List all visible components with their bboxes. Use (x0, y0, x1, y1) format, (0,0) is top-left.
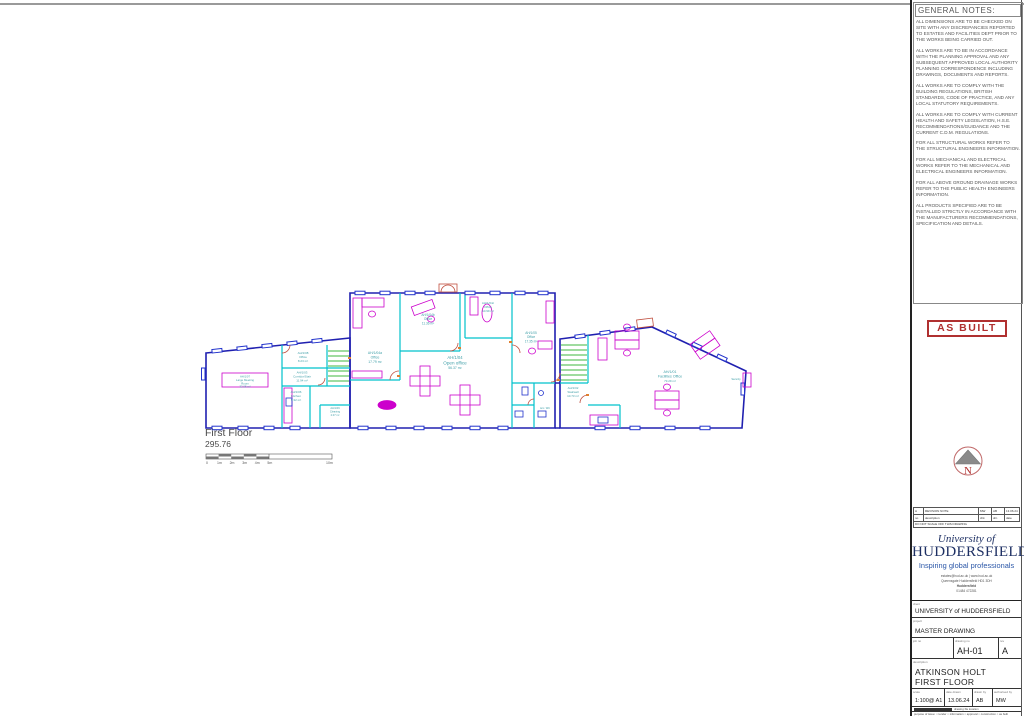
outer-walls (206, 293, 746, 428)
rev-label: rev (1000, 639, 1004, 643)
room-labels: AH/1/07Large MeetingRoom32.08 m² AH/1/08… (236, 301, 741, 417)
general-notes-title: GENERAL NOTES: (915, 4, 1021, 17)
room-label: AH/1/04cOffice10.99 m² (482, 301, 495, 313)
drawn-by-cell: drawn by AB (973, 689, 993, 706)
client-value: UNIVERSITY of HUDDERSFIELD (915, 608, 1010, 615)
general-notes: GENERAL NOTES: ALL DIMENSIONS ARE TO BE … (913, 2, 1023, 304)
svg-text:N: N (964, 465, 972, 477)
do-not-scale-warning: DO NOT SCALE OFF THIS DRAWING (913, 521, 1022, 528)
plan-title: First Floor (205, 427, 252, 439)
project-value: MASTER DRAWING (915, 628, 975, 635)
client-cell: client UNIVERSITY of HUDDERSFIELD (912, 601, 1021, 617)
svg-text:0: 0 (206, 461, 208, 465)
room-label: AH/1/05Office17.35 m² (525, 331, 538, 343)
room-label: AH/1/03Corridor/Stair11.94 m² (293, 371, 311, 383)
file-location-label: drawing file location (954, 707, 979, 711)
scale-date-row: scale 1:100@ A1 date drawn 13.06.24 draw… (912, 689, 1021, 707)
drawing-info-block: client UNIVERSITY of HUDDERSFIELD projec… (912, 600, 1021, 716)
revision-table: A REVISION NOTE MW AB 13.06.24 no descri… (913, 507, 1020, 522)
project-label: project (913, 619, 922, 623)
logo-contact: estates@hud.ac.uk | www.hud.ac.uk Queens… (912, 574, 1021, 595)
drawing-no-value: AH-01 (957, 646, 983, 656)
svg-text:3m: 3m (242, 461, 247, 465)
drawing-number-row: job no drawing no AH-01 rev A (912, 638, 1021, 659)
floor-plan-drawing: AH/1/07Large MeetingRoom32.08 m² AH/1/08… (200, 283, 760, 433)
room-label: AH/1/06Kitchen5.32 m² (291, 390, 302, 402)
date-label: date drawn (946, 690, 961, 694)
note-paragraph: FOR ALL STRUCTURAL WORKS REFER TO THE ST… (916, 140, 1020, 152)
room-label: AH/1/07Large MeetingRoom32.08 m² (236, 375, 254, 389)
scale-label: scale (913, 690, 920, 694)
note-paragraph: FOR ALL MECHANICAL AND ELECTRICAL WORKS … (916, 157, 1020, 175)
job-no-cell: job no (912, 638, 954, 658)
drawing-no-cell: drawing no AH-01 (954, 638, 999, 658)
room-label: AH/1/09Cleaning2.07 m² (330, 406, 341, 417)
authorised-by-value: MW (996, 698, 1006, 704)
authorised-by-label: authorised by (994, 690, 1012, 694)
note-paragraph: ALL DIMENSIONS ARE TO BE CHECKED ON SITE… (916, 19, 1020, 43)
client-label: client (913, 602, 920, 606)
description-cell: description ATKINSON HOLT FIRST FLOOR (912, 659, 1021, 688)
description-line2: FIRST FLOOR (915, 677, 974, 687)
logo-line2: HUDDERSFIELD (912, 544, 1021, 561)
svg-text:2m: 2m (230, 461, 235, 465)
room-label: AH/1/04bOffice11.36 m² (421, 313, 435, 325)
project-row: project MASTER DRAWING (912, 618, 1021, 638)
note-paragraph: ALL WORKS ARE TO COMPLY WITH THE BUILDIN… (916, 83, 1020, 107)
scale-bar: 0 1m 2m 3m 4m 5m 10m (205, 452, 335, 468)
drawn-by-value: AB (976, 698, 983, 704)
note-paragraph: ALL WORKS ARE TO BE IN ACCORDANCE WITH T… (916, 48, 1020, 78)
svg-text:4m: 4m (255, 461, 260, 465)
job-no-label: job no (913, 639, 921, 643)
revision-row: A REVISION NOTE MW AB 13.06.24 (914, 508, 1020, 515)
room-label-open-office: AH/1/04Open office56.37 m² (443, 355, 467, 370)
svg-text:1m: 1m (217, 461, 222, 465)
room-label: AH/1/04aOffice17.79 m² (368, 351, 383, 364)
note-paragraph: ALL PRODUCTS SPECIFIED ARE TO BE INSTALL… (916, 203, 1020, 227)
room-label-facilities: AH/1/01Facilities Office73.29 m² (658, 370, 682, 383)
north-arrow-icon: N (951, 444, 985, 478)
drawing-no-label: drawing no (955, 639, 970, 643)
project-cell: project MASTER DRAWING (912, 618, 1021, 637)
purpose-of-issue-label: purpose of issue: ○ tender ○ information… (912, 712, 1008, 718)
date-value: 13.06.24 (948, 698, 969, 704)
purpose-of-issue-row: purpose of issue: ○ tender ○ information… (912, 712, 1021, 718)
university-logo: University of HUDDERSFIELD Inspiring glo… (912, 533, 1021, 595)
file-location-strip: drawing file location (912, 707, 979, 711)
scale-value: 1:100@ A1 (915, 698, 942, 704)
description-label: description (913, 660, 928, 664)
revision-chk: MW (979, 508, 992, 515)
door-tags (348, 341, 589, 396)
revision-rev: A (914, 508, 924, 515)
plan-elevation: 295.76 (205, 439, 231, 449)
revision-drn: AB (992, 508, 1005, 515)
scale-cell: scale 1:100@ A1 (912, 689, 945, 706)
note-paragraph: FOR ALL ABOVE GROUND DRAINAGE WORKS REFE… (916, 180, 1020, 198)
logo-contact-phone: 01484 472281 (912, 589, 1021, 594)
client-row: client UNIVERSITY of HUDDERSFIELD (912, 601, 1021, 618)
room-label-security: Security (731, 377, 741, 381)
date-cell: date drawn 13.06.24 (945, 689, 973, 706)
logo-tagline: Inspiring global professionals (912, 561, 1021, 570)
description-line1: ATKINSON HOLT (915, 667, 986, 677)
authorised-by-cell: authorised by MW (993, 689, 1021, 706)
revision-note: REVISION NOTE (924, 508, 979, 515)
file-location-bar (914, 708, 952, 712)
title-block-panel: GENERAL NOTES: ALL DIMENSIONS ARE TO BE … (910, 0, 1022, 716)
drawn-by-label: drawn by (974, 690, 986, 694)
svg-text:5m: 5m (267, 461, 272, 465)
svg-text:10m: 10m (326, 461, 333, 465)
scale-bar-ticks: 0 1m 2m 3m 4m 5m 10m (206, 461, 333, 465)
room-label: AH/1/02Stairwell10.73 m² (567, 386, 579, 398)
description-row: description ATKINSON HOLT FIRST FLOOR (912, 659, 1021, 689)
rev-value: A (1002, 646, 1008, 656)
note-paragraph: ALL WORKS ARE TO COMPLY WITH CURRENT HEA… (916, 112, 1020, 136)
sheet-top-edge (0, 3, 1024, 5)
room-label-acc-wc: Acc. WC (540, 406, 550, 410)
revision-date: 13.06.24 (1005, 508, 1020, 515)
room-label: AH/1/08Office8.23 m² (298, 351, 309, 363)
rev-cell: rev A (999, 638, 1021, 658)
as-built-stamp: AS BUILT (927, 320, 1007, 337)
